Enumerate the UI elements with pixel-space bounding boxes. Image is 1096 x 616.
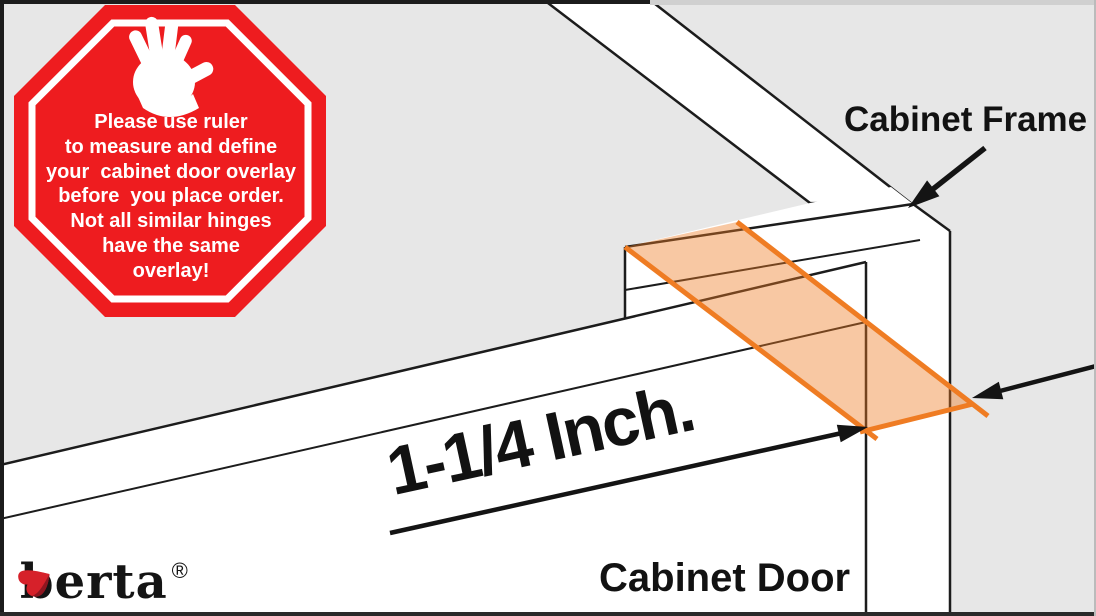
registered-mark: ®	[172, 558, 188, 584]
warning-line: have the same	[35, 234, 307, 259]
measure-arrow-right-line	[1000, 366, 1096, 391]
warning-line: before you place order.	[35, 184, 307, 209]
brand-logo: berta ®	[12, 556, 188, 608]
warning-line: overlay!	[35, 259, 307, 284]
warning-line: Not all similar hinges	[35, 209, 307, 234]
warning-line: to measure and define	[35, 135, 307, 160]
warning-line: your cabinet door overlay	[35, 160, 307, 185]
diagram-canvas: Please use ruler to measure and define y…	[0, 0, 1096, 616]
frame-pointer-line	[928, 148, 985, 193]
measure-arrow-right-head	[972, 382, 1003, 399]
stop-sign-warning-text: Please use ruler to measure and define y…	[35, 110, 307, 284]
cabinet-door-label: Cabinet Door	[599, 556, 850, 601]
cabinet-overlay-diagram	[0, 0, 1096, 616]
cabinet-frame-label: Cabinet Frame	[844, 100, 1087, 140]
brand-heart-icon	[12, 556, 64, 606]
warning-line: Please use ruler	[35, 110, 307, 135]
